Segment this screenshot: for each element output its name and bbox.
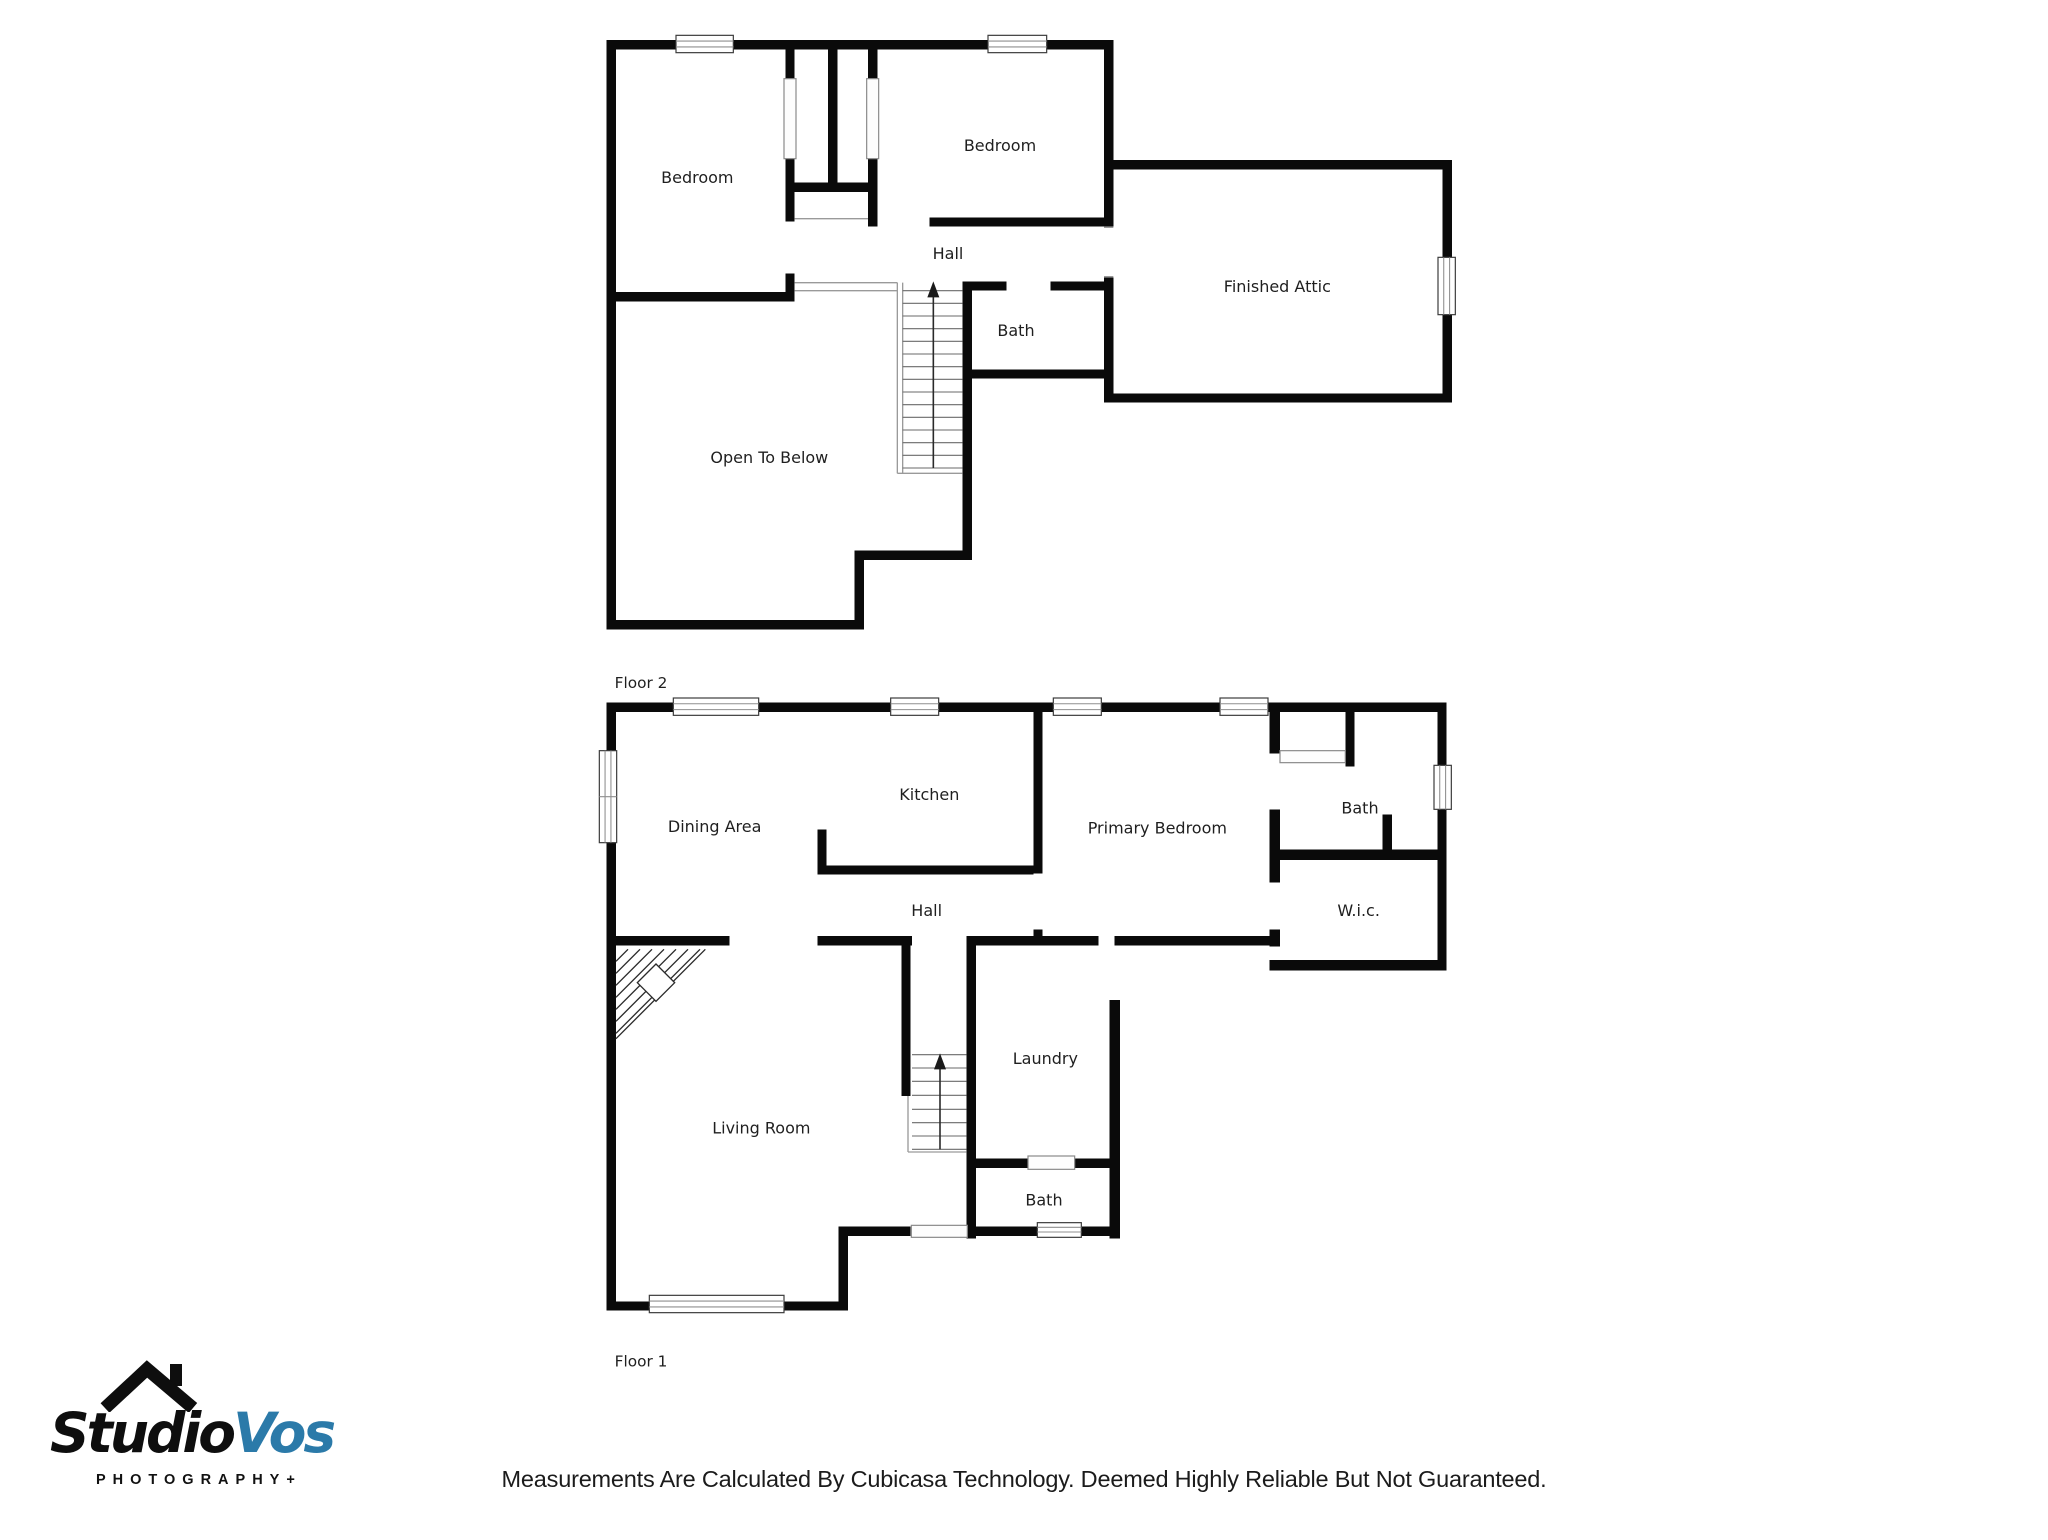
room-label-bath-f2: Bath	[997, 321, 1034, 340]
floor1-stairs	[912, 1053, 967, 1149]
measurement-disclaimer: Measurements Are Calculated By Cubicasa …	[0, 1466, 2048, 1493]
brand-vos: Vos	[233, 1401, 333, 1465]
room-label-bedroom-left: Bedroom	[661, 168, 733, 187]
window-icon	[1220, 698, 1268, 715]
laundry-door-icon	[1028, 1156, 1075, 1169]
floor1-open-edges	[908, 1096, 967, 1152]
window-icon	[676, 35, 733, 52]
window-icon	[988, 35, 1047, 52]
room-label-bath-lower-f1: Bath	[1025, 1191, 1062, 1210]
window-icon	[1037, 1223, 1081, 1238]
floor1-plan: Dining Area Kitchen Primary Bedroom Bath…	[599, 698, 1451, 1371]
room-label-bedroom-right: Bedroom	[964, 136, 1036, 155]
brand-wordmark: StudioVos	[50, 1404, 333, 1463]
window-icon	[673, 698, 758, 715]
window-icon	[1438, 257, 1455, 314]
window-icon	[599, 751, 616, 843]
floor1-up-arrow-icon	[934, 1053, 946, 1069]
room-label-open-to-below: Open To Below	[710, 448, 828, 467]
floor1-label: Floor 1	[615, 1353, 668, 1371]
room-label-dining-area: Dining Area	[668, 817, 762, 836]
closet-slider-door-icon	[867, 79, 879, 159]
fireplace-corner	[616, 949, 705, 1038]
room-label-laundry: Laundry	[1013, 1049, 1078, 1068]
closet-slider-door-icon	[784, 79, 796, 159]
room-label-wic: W.i.c.	[1337, 901, 1379, 920]
window-icon	[649, 1295, 784, 1312]
brand-studio: Studio	[50, 1401, 233, 1465]
window-icon	[891, 698, 939, 715]
floor2-stairs	[903, 281, 963, 468]
room-label-living-room: Living Room	[712, 1119, 810, 1138]
floor1-walls	[607, 703, 1447, 1311]
floor2-label: Floor 2	[615, 674, 668, 692]
room-label-bath-upper-f1: Bath	[1341, 799, 1378, 818]
floor2-plan: Bedroom Bedroom Hall Bath Open To Below …	[607, 35, 1456, 692]
page: { "page": { "background": "#ffffff" }, "…	[0, 0, 2048, 1536]
closet-slider-door-icon	[1280, 751, 1345, 763]
room-label-finished-attic: Finished Attic	[1224, 277, 1331, 296]
room-label-kitchen: Kitchen	[899, 785, 959, 804]
room-label-hall-f1: Hall	[911, 901, 942, 920]
exterior-door-icon	[911, 1225, 967, 1237]
floor1-windows	[599, 698, 1451, 1313]
room-label-hall-f2: Hall	[933, 244, 964, 263]
window-icon	[1053, 698, 1101, 715]
floorplan-canvas: Bedroom Bedroom Hall Bath Open To Below …	[0, 0, 2048, 1536]
window-icon	[1434, 765, 1451, 809]
floor2-up-arrow-icon	[927, 281, 939, 297]
room-label-primary-bedroom: Primary Bedroom	[1088, 819, 1227, 838]
